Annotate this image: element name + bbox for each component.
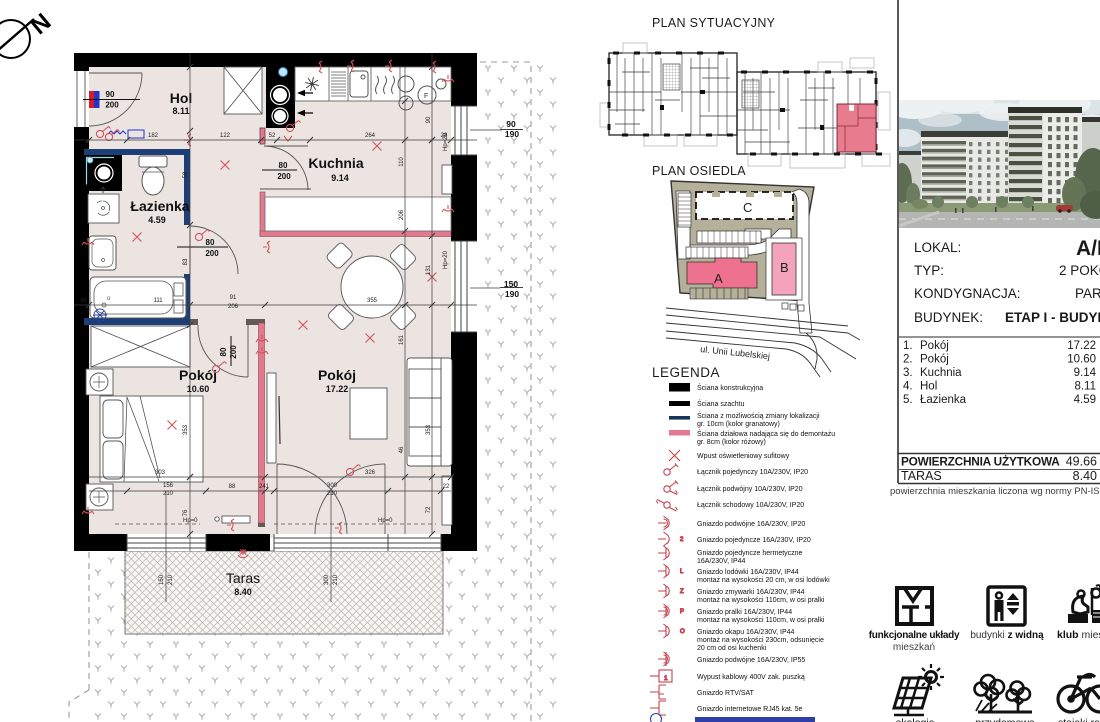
svg-text:131: 131 [426, 264, 432, 275]
svg-text:P: P [680, 609, 684, 615]
svg-text:Łącznik schodowy 10A/230V, IP2: Łącznik schodowy 10A/230V, IP20 [697, 502, 804, 509]
svg-text:F: F [424, 93, 428, 100]
svg-text:Gniazdo zmywarki 16A/230V, IP4: Gniazdo zmywarki 16A/230V, IP44 [697, 589, 805, 596]
svg-text:355: 355 [367, 298, 378, 304]
svg-text:111: 111 [153, 298, 163, 304]
svg-text:4.59: 4.59 [1074, 394, 1096, 406]
svg-text:Gniazdo pojedyncze 16A/230V, I: Gniazdo pojedyncze 16A/230V, IP20 [697, 537, 811, 544]
svg-text:montaż na wysokości 110cm, w o: montaż na wysokości 110cm, w osi pralki [697, 597, 825, 604]
svg-text:210: 210 [168, 574, 174, 585]
svg-text:83: 83 [183, 258, 189, 265]
svg-text:stojaki rowerowe: stojaki rowerowe [1058, 717, 1100, 722]
svg-text:budynki z widną: budynki z widną [970, 630, 1044, 641]
svg-text:ekologia: ekologia [895, 717, 934, 722]
svg-text:Hp=20: Hp=20 [443, 250, 449, 269]
svg-text:9.14: 9.14 [331, 173, 349, 183]
svg-text:BUDYNEK:: BUDYNEK: [914, 310, 983, 325]
svg-text:190: 190 [505, 289, 519, 299]
svg-text:76: 76 [183, 509, 189, 516]
svg-text:przydomowe: przydomowe [975, 717, 1035, 722]
svg-text:Hp=20: Hp=20 [443, 132, 449, 151]
svg-text:300: 300 [324, 574, 330, 585]
svg-text:1.: 1. [903, 340, 913, 352]
svg-text:PLAN OSIEDLA: PLAN OSIEDLA [652, 164, 746, 178]
svg-text:210: 210 [163, 491, 174, 497]
svg-text:20 cm od osi kuchenki: 20 cm od osi kuchenki [697, 645, 767, 652]
svg-text:A: A [714, 271, 723, 286]
svg-text:90: 90 [426, 116, 432, 123]
svg-text:funkcjonalne układy: funkcjonalne układy [869, 630, 960, 641]
svg-text:Hp=0: Hp=0 [378, 518, 393, 524]
svg-text:210: 210 [333, 574, 339, 585]
svg-text:8.11: 8.11 [1074, 381, 1096, 393]
svg-text:80: 80 [206, 238, 215, 247]
svg-text:72: 72 [426, 506, 432, 513]
svg-text:POWIERZCHNIA UŻYTKOWA: POWIERZCHNIA UŻYTKOWA [901, 455, 1060, 469]
svg-text:16A/230V, IP44: 16A/230V, IP44 [697, 558, 746, 565]
svg-text:90: 90 [506, 119, 516, 129]
svg-text:241: 241 [259, 484, 270, 490]
svg-text:PLAN SYTUACYJNY: PLAN SYTUACYJNY [652, 16, 776, 30]
svg-text:montaż na wysokości 110cm, w o: montaż na wysokości 110cm, w osi pralki [697, 617, 825, 624]
svg-text:Wypust kablowy 400V zak. puszk: Wypust kablowy 400V zak. puszką [697, 674, 805, 681]
svg-text:2.: 2. [903, 354, 913, 366]
svg-text:156: 156 [163, 483, 174, 489]
svg-text:O: O [680, 629, 685, 635]
svg-text:150: 150 [504, 279, 518, 289]
svg-text:200: 200 [277, 172, 291, 181]
svg-text:206: 206 [228, 304, 239, 310]
svg-text:326: 326 [365, 470, 376, 476]
svg-text:LOKAL:: LOKAL: [914, 240, 961, 255]
svg-text:Gniazdo lodówki 16A/230V, IP44: Gniazdo lodówki 16A/230V, IP44 [697, 569, 799, 576]
svg-text:Gniazdo RTV/SAT: Gniazdo RTV/SAT [697, 690, 755, 697]
svg-text:Gniazdo pojedyncze hermetyczne: Gniazdo pojedyncze hermetyczne [697, 550, 803, 557]
svg-text:Ściana działowa nadająca się d: Ściana działowa nadająca się do demontaż… [697, 429, 835, 438]
svg-text:Wpust oświetleniowy sufitowy: Wpust oświetleniowy sufitowy [697, 453, 790, 460]
svg-text:182: 182 [148, 133, 159, 139]
svg-text:Kuchnia: Kuchnia [920, 367, 962, 379]
svg-text:80: 80 [279, 161, 288, 170]
svg-text:5.: 5. [903, 394, 913, 406]
svg-text:88: 88 [229, 484, 236, 490]
svg-text:200: 200 [105, 101, 119, 110]
svg-text:91: 91 [230, 295, 237, 301]
svg-text:17.22: 17.22 [1067, 340, 1096, 352]
svg-text:49.66: 49.66 [1066, 455, 1097, 469]
svg-text:190: 190 [505, 129, 519, 139]
svg-text:300: 300 [327, 483, 338, 489]
svg-text:Łazienka: Łazienka [130, 198, 189, 214]
svg-text:gr. 8cm (kolor różowy): gr. 8cm (kolor różowy) [697, 439, 766, 446]
svg-text:22: 22 [443, 484, 450, 490]
svg-text:powierzchnia mieszkania liczon: powierzchnia mieszkania liczona wg normy… [890, 486, 1100, 497]
svg-text:210: 210 [327, 491, 338, 497]
svg-text:3.: 3. [903, 367, 913, 379]
svg-text:353: 353 [183, 424, 189, 435]
svg-text:B: B [780, 260, 789, 275]
svg-text:Hol: Hol [920, 381, 937, 393]
svg-text:Gniazdo okapu 16A/230V, IP44: Gniazdo okapu 16A/230V, IP44 [697, 629, 795, 636]
svg-text:Gniazdo pralki 16A/230V, IP44: Gniazdo pralki 16A/230V, IP44 [697, 609, 792, 616]
svg-text:10.60: 10.60 [1067, 354, 1096, 366]
svg-text:mieszkań: mieszkań [893, 642, 935, 653]
svg-text:Ściana z możliwością zmiany lo: Ściana z możliwością zmiany lokalizacji [697, 411, 820, 420]
svg-text:200: 200 [229, 345, 238, 359]
svg-text:Ściana konstrukcyjna: Ściana konstrukcyjna [697, 383, 763, 392]
svg-text:Gniazdo internetowe RJ45 kat.: Gniazdo internetowe RJ45 kat. 5e [697, 706, 803, 713]
svg-text:Pokój: Pokój [920, 340, 949, 352]
svg-text:8.40: 8.40 [1073, 469, 1097, 483]
svg-text:A/M: A/M [1076, 237, 1100, 260]
svg-text:206: 206 [399, 209, 405, 220]
svg-text:LEGENDA: LEGENDA [652, 365, 720, 380]
svg-text:Łącznik podwójny 10A/230V, IP2: Łącznik podwójny 10A/230V, IP20 [697, 486, 803, 493]
svg-text:Pokój: Pokój [318, 367, 356, 383]
svg-text:41: 41 [81, 298, 88, 304]
svg-text:Taras: Taras [226, 570, 260, 586]
svg-text:161: 161 [399, 334, 405, 345]
svg-text:TARAS: TARAS [901, 469, 942, 483]
svg-text:8.40: 8.40 [234, 587, 252, 597]
svg-text:52: 52 [269, 133, 276, 139]
svg-text:ETAP I - BUDYNEK 2: ETAP I - BUDYNEK 2 [1005, 310, 1100, 325]
svg-text:4.: 4. [903, 381, 913, 393]
svg-text:9.14: 9.14 [1074, 367, 1097, 379]
svg-text:Pokój: Pokój [920, 354, 949, 366]
svg-text:90: 90 [106, 90, 115, 99]
svg-text:C: C [743, 200, 752, 215]
svg-text:150: 150 [159, 574, 165, 585]
svg-text:Łazienka: Łazienka [920, 394, 967, 406]
svg-text:KONDYGNACJA:: KONDYGNACJA: [914, 286, 1021, 301]
svg-text:8.11: 8.11 [172, 106, 189, 116]
svg-text:264: 264 [365, 133, 376, 139]
svg-text:2 POKOJE: 2 POKOJE [1059, 263, 1100, 278]
svg-text:Hol: Hol [170, 90, 193, 106]
svg-text:200: 200 [205, 249, 219, 258]
svg-text:TYP:: TYP: [914, 263, 944, 278]
svg-text:46: 46 [399, 446, 405, 453]
svg-text:Z: Z [680, 589, 684, 595]
svg-text:Kuchnia: Kuchnia [308, 155, 363, 171]
svg-text:Ściana szachtu: Ściana szachtu [697, 399, 745, 408]
svg-text:80: 80 [219, 347, 228, 356]
svg-text:PARTER: PARTER [1075, 286, 1100, 301]
svg-text:122: 122 [220, 133, 231, 139]
svg-text:303: 303 [155, 470, 166, 476]
svg-text:110: 110 [399, 157, 405, 167]
svg-text:Gniazdo podwójne 16A/230V, IP2: Gniazdo podwójne 16A/230V, IP20 [697, 521, 805, 528]
svg-text:montaż na wysokości 20 cm, w o: montaż na wysokości 20 cm, w osi lodówki [697, 577, 830, 584]
svg-text:353: 353 [426, 424, 432, 435]
svg-text:gr. 10cm (kolor granatowy): gr. 10cm (kolor granatowy) [697, 421, 780, 428]
svg-text:Pokój: Pokój [179, 367, 217, 383]
svg-text:Gniazdo podwójne 16A/230V, IP5: Gniazdo podwójne 16A/230V, IP55 [697, 657, 805, 664]
svg-text:58: 58 [183, 171, 189, 178]
svg-text:klub mieszkańca: klub mieszkańca [1057, 629, 1100, 641]
svg-text:Hp=0: Hp=0 [183, 518, 198, 524]
svg-text:17.22: 17.22 [326, 384, 349, 394]
svg-text:Łącznik pojedynczy 10A/230V, I: Łącznik pojedynczy 10A/230V, IP20 [697, 469, 808, 476]
svg-text:montaż na wysokości 230cm, ods: montaż na wysokości 230cm, odsunięcie [697, 637, 824, 644]
svg-text:1: 1 [664, 675, 668, 682]
svg-text:4.59: 4.59 [148, 215, 166, 225]
